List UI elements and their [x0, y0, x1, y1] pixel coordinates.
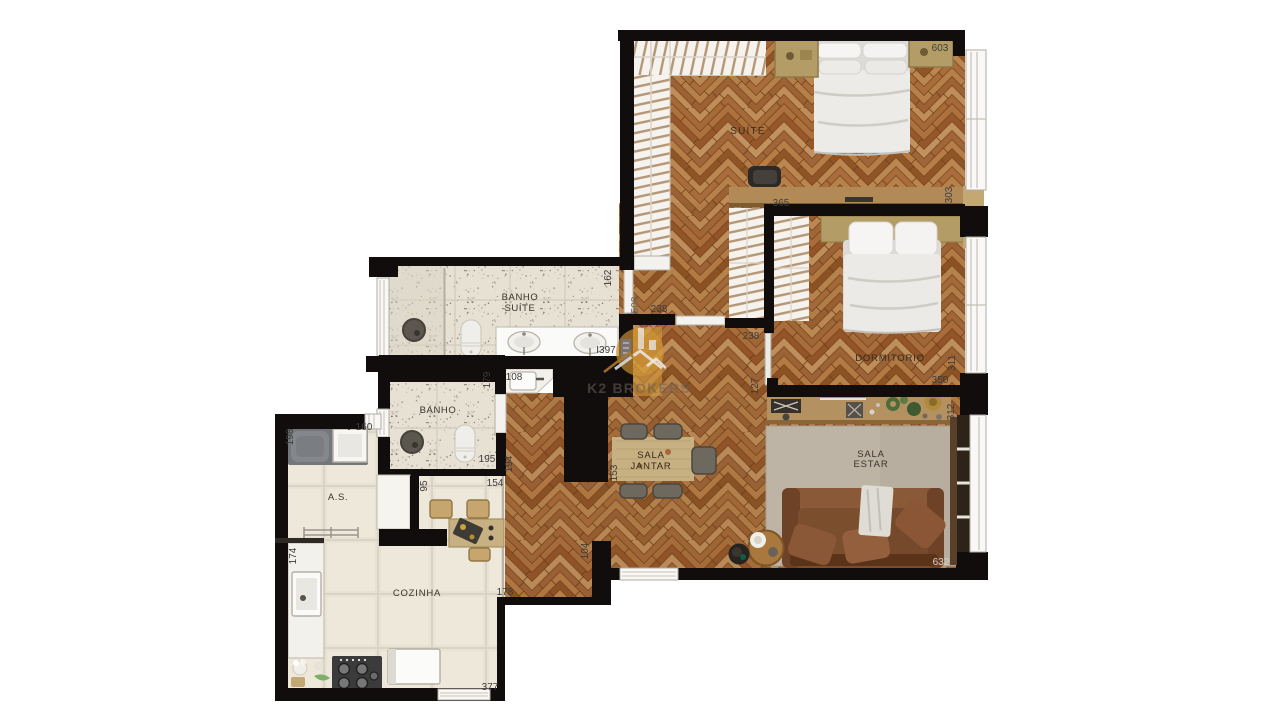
svg-text:303: 303	[944, 186, 955, 203]
svg-text:BANHO: BANHO	[502, 292, 539, 303]
svg-text:350: 350	[932, 375, 949, 386]
svg-text:632: 632	[933, 557, 950, 568]
svg-text:153: 153	[609, 464, 620, 481]
svg-text:312: 312	[946, 403, 957, 420]
svg-text:365: 365	[773, 198, 790, 209]
svg-text:194: 194	[504, 455, 515, 472]
svg-text:160: 160	[356, 422, 373, 433]
svg-text:502: 502	[630, 296, 641, 313]
svg-text:ESTAR: ESTAR	[854, 459, 889, 470]
svg-text:COZINHA: COZINHA	[393, 588, 441, 599]
svg-text:162: 162	[603, 269, 614, 286]
svg-text:238: 238	[651, 304, 668, 315]
svg-text:127: 127	[750, 377, 761, 394]
svg-text:178: 178	[497, 587, 514, 598]
svg-text:SUÍTE: SUÍTE	[730, 124, 765, 137]
svg-text:179: 179	[482, 371, 493, 388]
svg-text:238: 238	[743, 331, 760, 342]
svg-text:A.S.: A.S.	[328, 492, 348, 503]
svg-text:195: 195	[479, 454, 496, 465]
svg-text:JANTAR: JANTAR	[630, 461, 671, 472]
svg-text:154: 154	[487, 478, 504, 489]
svg-text:95: 95	[419, 480, 430, 492]
svg-text:BANHO: BANHO	[420, 405, 457, 416]
svg-text:SUÍTE: SUÍTE	[505, 303, 536, 314]
svg-text:I397: I397	[596, 345, 616, 356]
svg-text:198: 198	[285, 428, 296, 445]
svg-text:603: 603	[932, 43, 949, 54]
svg-text:SALA: SALA	[637, 450, 665, 461]
svg-text:174: 174	[288, 547, 299, 564]
svg-text:104: 104	[580, 542, 591, 559]
svg-text:K2 BROKERS: K2 BROKERS	[587, 380, 691, 396]
svg-text:DORMITORIO: DORMITORIO	[855, 353, 925, 364]
svg-text:108: 108	[506, 372, 523, 383]
svg-text:377: 377	[482, 682, 499, 693]
svg-text:311: 311	[947, 355, 958, 371]
